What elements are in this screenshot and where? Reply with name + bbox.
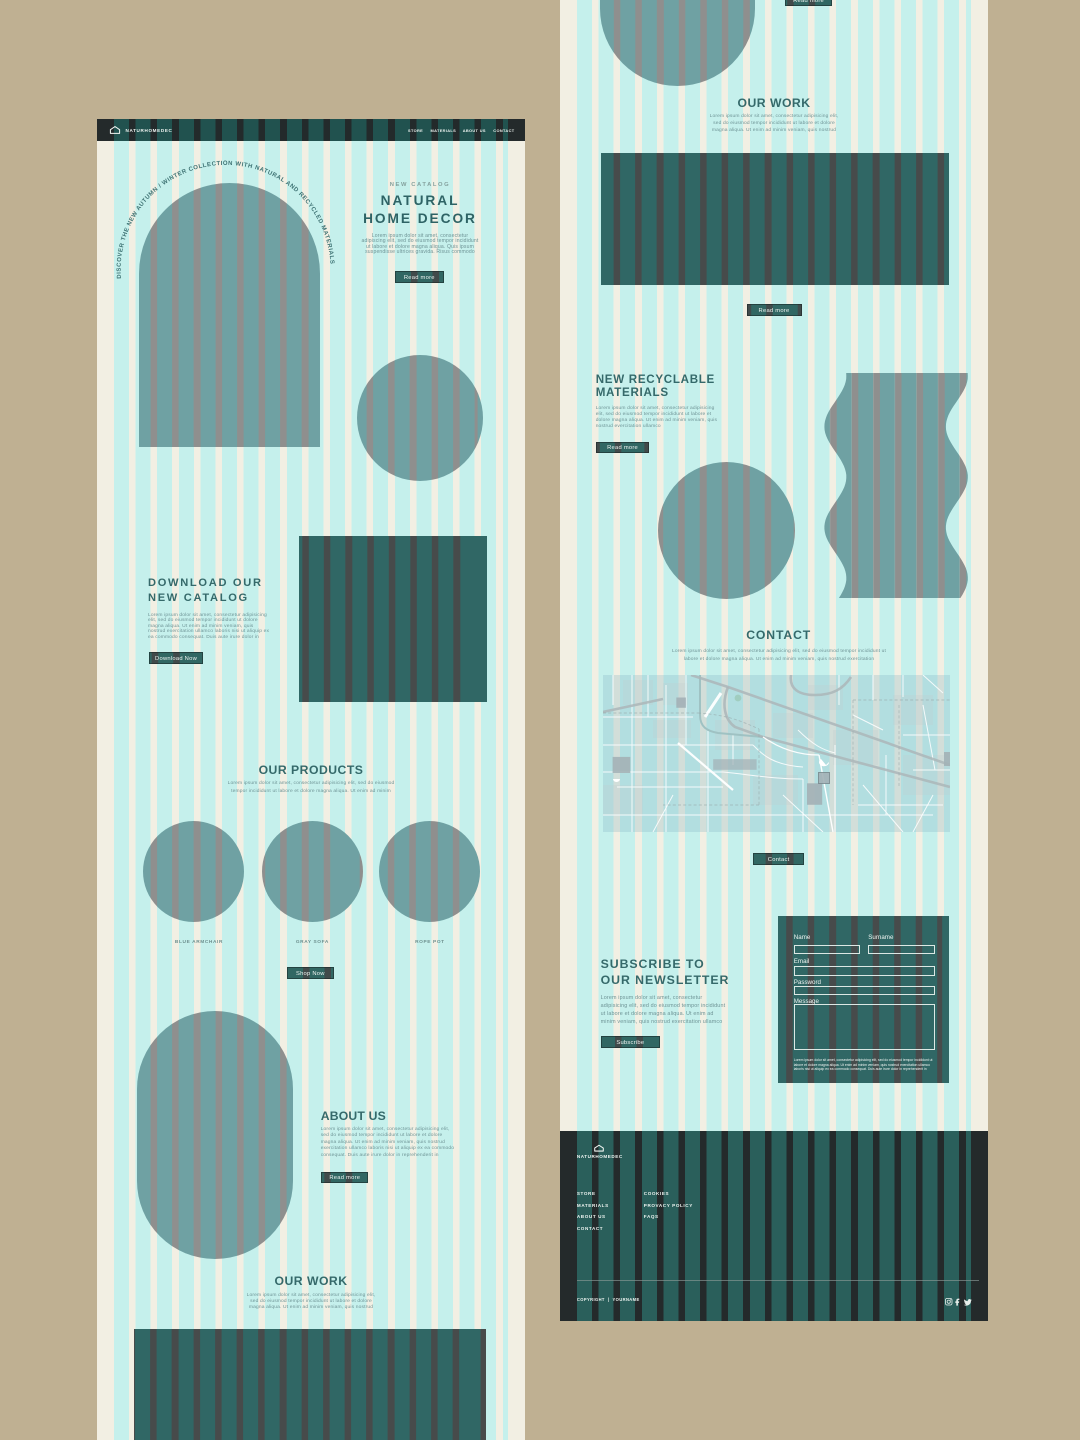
svg-text:DISCOVER THE NEW AUTUMN / WINT: DISCOVER THE NEW AUTUMN / WINTER COLLECT… [117,161,335,279]
